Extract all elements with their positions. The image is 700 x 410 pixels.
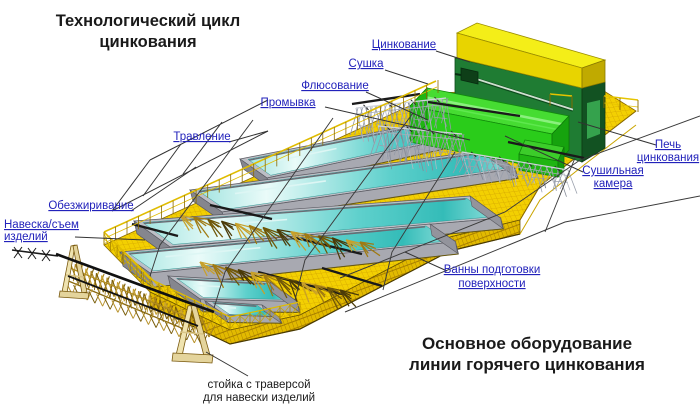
svg-text:Промывка: Промывка [260,97,316,109]
svg-text:цинкования: цинкования [99,33,196,51]
svg-text:Сушильная: Сушильная [582,165,643,177]
svg-text:Флюсование: Флюсование [301,80,369,92]
svg-text:Травление: Травление [173,131,230,143]
svg-text:стойка с траверсой: стойка с траверсой [207,379,310,391]
svg-text:линии горячего цинкования: линии горячего цинкования [409,355,645,374]
svg-text:Основное оборудование: Основное оборудование [422,334,632,353]
svg-text:цинкования: цинкования [637,152,699,164]
svg-text:Навеска/съем: Навеска/съем [4,219,79,231]
svg-text:Сушка: Сушка [349,58,385,70]
svg-text:для навески изделий: для навески изделий [203,392,315,404]
svg-text:камера: камера [594,178,633,190]
svg-text:Обезжиривание: Обезжиривание [48,200,133,212]
svg-text:Ванны подготовки: Ванны подготовки [444,264,541,276]
svg-text:Печь: Печь [655,139,681,151]
svg-text:поверхности: поверхности [458,278,525,290]
svg-text:Технологический цикл: Технологический цикл [56,12,240,30]
svg-text:изделий: изделий [4,231,48,243]
svg-text:Цинкование: Цинкование [372,39,436,51]
